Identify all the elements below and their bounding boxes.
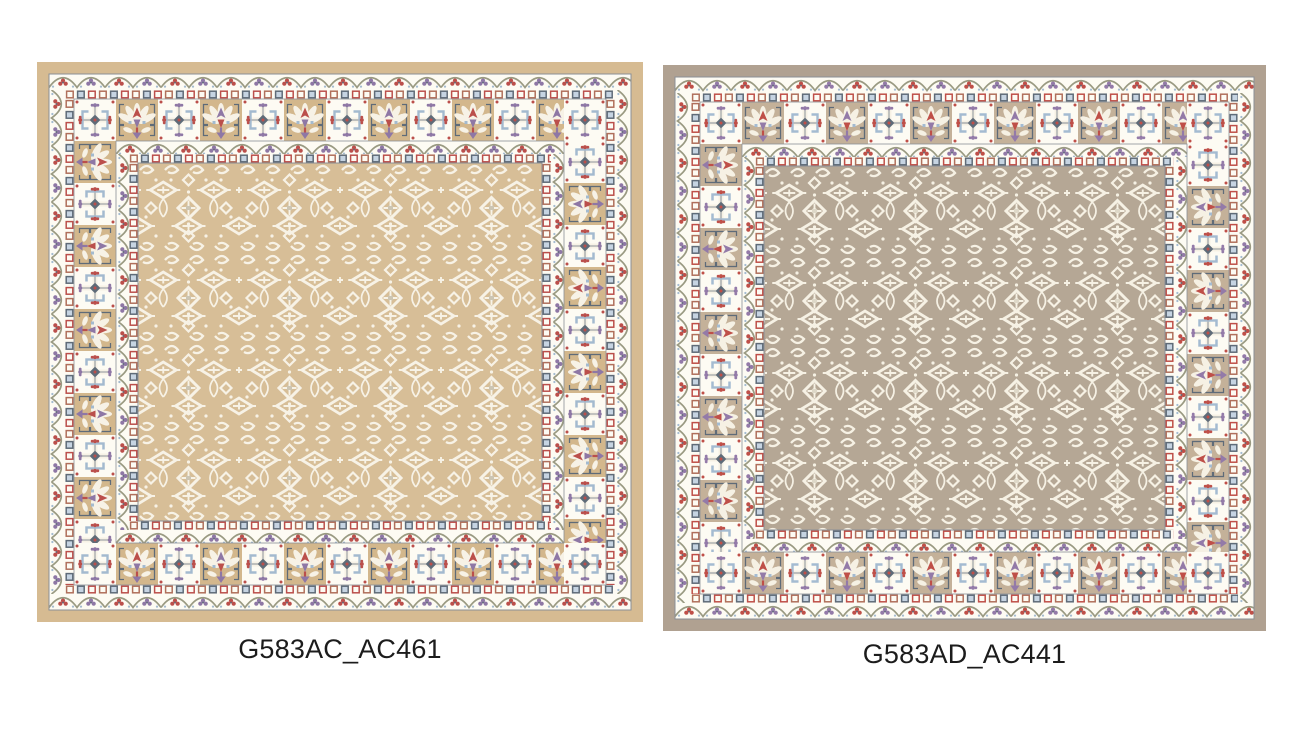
product-code-right: G583AD_AC441 [663, 640, 1266, 670]
catalog-page: G583AC_AC461 G583AD_AC441 [0, 0, 1300, 731]
rug-image-left [37, 62, 643, 622]
product-right: G583AD_AC441 [663, 65, 1266, 670]
product-left: G583AC_AC461 [37, 62, 643, 665]
rug-image-right [663, 65, 1266, 631]
product-code-left: G583AC_AC461 [37, 635, 643, 665]
